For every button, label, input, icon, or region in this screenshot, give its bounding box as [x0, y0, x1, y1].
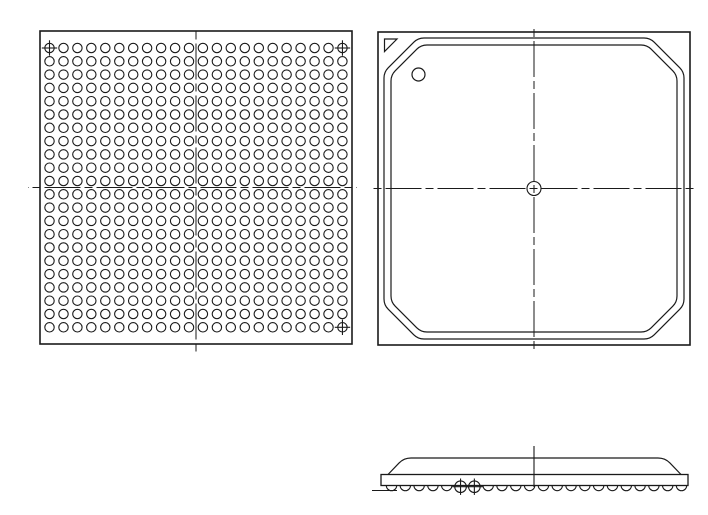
- pin1-markers: [385, 39, 426, 81]
- package-drawing-canvas: [0, 0, 708, 515]
- solder-ball: [621, 486, 631, 491]
- drawing-page: [0, 0, 708, 515]
- solder-ball: [663, 486, 673, 491]
- solder-ball: [566, 486, 576, 491]
- solder-ball: [497, 486, 507, 491]
- solder-ball: [442, 486, 452, 491]
- solder-ball: [649, 486, 659, 491]
- solder-ball: [593, 486, 603, 491]
- side-view: [372, 446, 688, 495]
- package-profile: [372, 458, 688, 491]
- top-view-centerlines: [371, 27, 696, 351]
- solder-ball: [524, 486, 534, 491]
- bottom-view: [28, 31, 357, 352]
- solder-ball: [414, 486, 424, 491]
- solder-ball: [607, 486, 617, 491]
- solder-ball: [552, 486, 562, 491]
- solder-balls: [386, 479, 686, 495]
- top-view: [371, 27, 696, 351]
- solder-ball: [483, 486, 493, 491]
- pin1-dimple-icon: [412, 68, 425, 81]
- solder-ball: [635, 486, 645, 491]
- solder-ball: [400, 486, 410, 491]
- solder-ball: [676, 486, 686, 491]
- solder-ball: [538, 486, 548, 491]
- solder-ball: [386, 486, 396, 491]
- solder-ball: [511, 486, 521, 491]
- solder-ball: [428, 486, 438, 491]
- pin1-triangle-icon: [385, 39, 398, 52]
- solder-ball: [580, 486, 590, 491]
